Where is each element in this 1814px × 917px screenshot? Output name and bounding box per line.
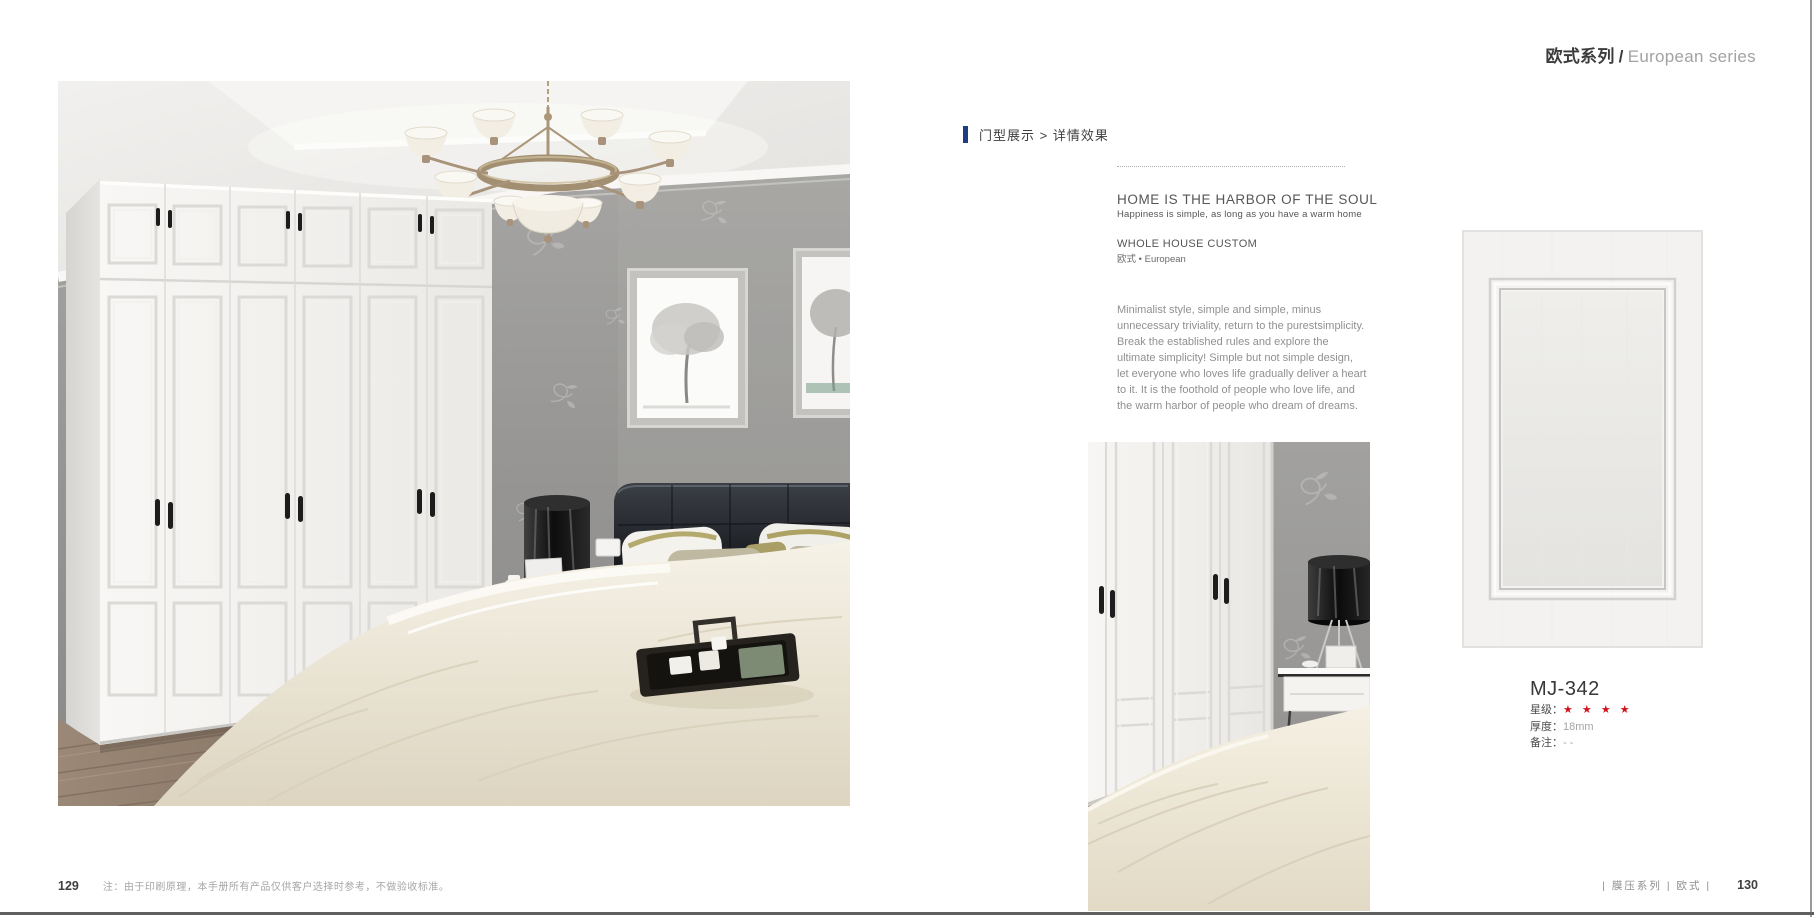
note-value: - - xyxy=(1563,737,1573,749)
bedroom-photo xyxy=(58,81,850,806)
series-header: 欧式系列/European series xyxy=(1545,42,1756,67)
spec-note-row: 备注：- - xyxy=(1530,736,1633,751)
star-rating: ★ ★ ★ ★ xyxy=(1563,704,1633,716)
intro-subheadline: Happiness is simple, as long as you have… xyxy=(1117,209,1362,220)
series-title-slash: / xyxy=(1615,47,1628,66)
star-label: 星级： xyxy=(1530,704,1563,716)
page-number-right: 130 xyxy=(1737,878,1758,892)
magazine xyxy=(738,644,785,678)
paragraph-line: the warm harbor of people who dream of d… xyxy=(1117,398,1367,414)
wardrobe-side-panel xyxy=(66,179,100,747)
custom-subtitle: 欧式 • European xyxy=(1117,251,1186,265)
paragraph-line: ultimate simplicity! Simple but not simp… xyxy=(1117,350,1367,366)
custom-title: WHOLE HOUSE CUSTOM xyxy=(1117,238,1257,250)
catalog-spread: 欧式系列/European series 门型展示 > 详情效果 HOME IS… xyxy=(0,0,1814,917)
section-label: 门型展示 > 详情效果 xyxy=(979,125,1109,144)
paragraph-line: unnecessary triviality, return to the pu… xyxy=(1117,318,1367,334)
series-title-en: European series xyxy=(1628,47,1756,66)
bedroom-photo-illustration xyxy=(58,81,850,806)
spec-thickness-row: 厚度：18mm xyxy=(1530,720,1633,735)
wall-art-right xyxy=(793,248,850,418)
paragraph-line: to it. It is the foothold of people who … xyxy=(1117,382,1367,398)
footer-right: | 膜压系列 | 欧式 | 130 xyxy=(1602,878,1758,893)
page-edge-bottom xyxy=(0,912,1814,915)
intro-headline: HOME IS THE HARBOR OF THE SOUL xyxy=(1117,192,1378,207)
spec-star-row: 星级：★ ★ ★ ★ xyxy=(1530,703,1633,718)
intro-paragraph: Minimalist style, simple and simple, min… xyxy=(1117,302,1367,414)
section-title: 门型展示 > 详情效果 xyxy=(963,125,1109,144)
door-panel-photo xyxy=(1462,230,1703,648)
footer-disclaimer: 注：由于印刷原理，本手册所有产品仅供客户选择时参考，不做验收标准。 xyxy=(103,878,450,893)
thickness-label: 厚度： xyxy=(1530,721,1563,733)
door-panel-illustration xyxy=(1462,230,1703,648)
page-number-left: 129 xyxy=(58,879,79,893)
footer-series-meta: | 膜压系列 | 欧式 | xyxy=(1602,878,1711,893)
thickness-value: 18mm xyxy=(1563,721,1594,733)
bedroom-detail-photo xyxy=(1088,442,1370,911)
section-marker-bar xyxy=(963,126,968,143)
light-switch xyxy=(596,539,620,556)
wall-art-left xyxy=(627,268,748,428)
paragraph-line: Minimalist style, simple and simple, min… xyxy=(1117,302,1367,318)
note-label: 备注： xyxy=(1530,737,1563,749)
paragraph-line: Break the established rules and explore … xyxy=(1117,334,1367,350)
product-model: MJ-342 xyxy=(1530,678,1633,701)
product-info: MJ-342 星级：★ ★ ★ ★ 厚度：18mm 备注：- - xyxy=(1530,678,1633,751)
dotted-divider xyxy=(1117,166,1345,167)
page-edge-right xyxy=(1810,0,1812,917)
series-title-zh: 欧式系列 xyxy=(1545,47,1614,66)
bedroom-detail-illustration xyxy=(1088,442,1370,911)
footer-left: 129 注：由于印刷原理，本手册所有产品仅供客户选择时参考，不做验收标准。 xyxy=(58,878,449,893)
paragraph-line: let everyone who loves life gradually de… xyxy=(1117,366,1367,382)
